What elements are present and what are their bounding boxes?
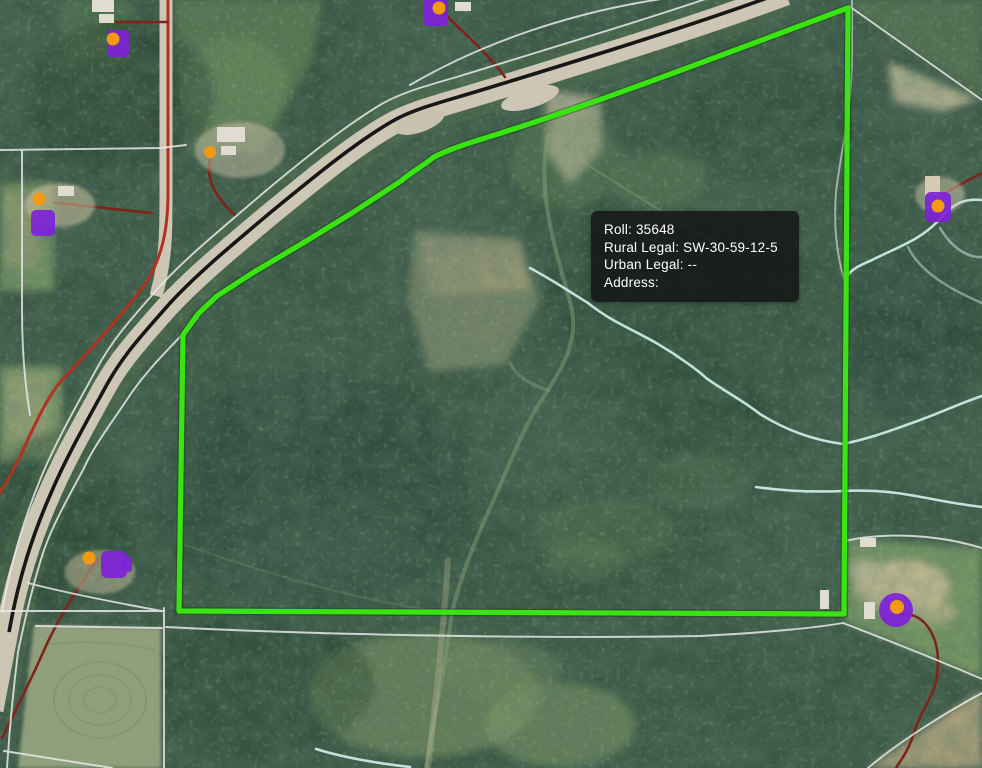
tilled-field: [18, 625, 161, 768]
terrain-base: [0, 0, 982, 768]
orange-site-dot-icon[interactable]: [33, 193, 46, 206]
orange-site-dot-icon[interactable]: [932, 200, 945, 213]
map-viewport[interactable]: Roll: 35648 Rural Legal: SW-30-59-12-5 U…: [0, 0, 982, 768]
orange-site-dot-icon[interactable]: [890, 600, 904, 614]
building-marker-northwest[interactable]: [107, 30, 130, 57]
purple-building-footprint-icon[interactable]: [123, 557, 132, 572]
orange-site-dot-icon[interactable]: [107, 33, 120, 46]
orange-site-dot-icon[interactable]: [204, 146, 216, 158]
satellite-map: [0, 0, 982, 768]
orange-site-dot-icon[interactable]: [433, 2, 446, 15]
orange-site-dot-icon[interactable]: [83, 552, 96, 565]
building-marker-southeast[interactable]: [879, 593, 913, 627]
building-marker-east[interactable]: [925, 192, 951, 222]
building-marker-north[interactable]: [424, 0, 448, 26]
purple-building-footprint-icon[interactable]: [31, 210, 55, 236]
